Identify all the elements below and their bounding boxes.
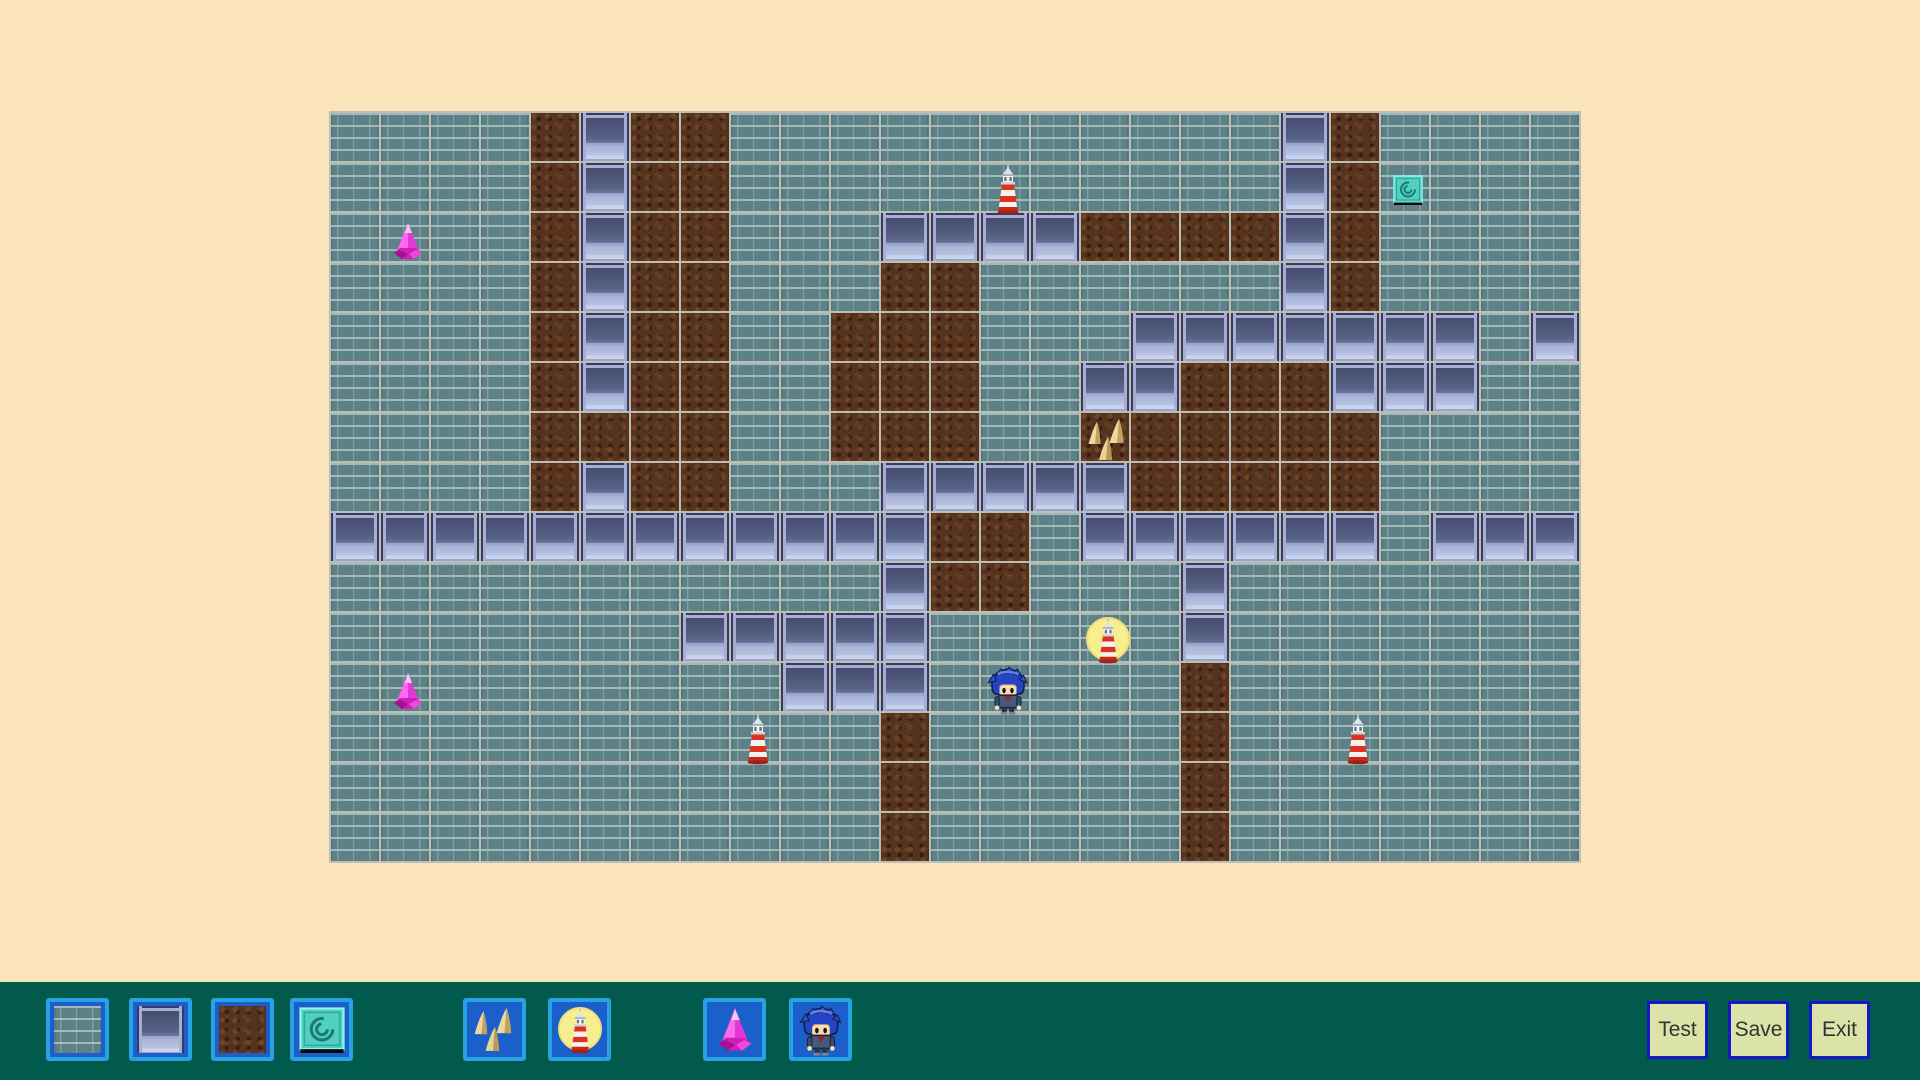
- map-cell-stone-brick[interactable]: [581, 813, 631, 863]
- map-cell-dirt[interactable]: [1331, 213, 1381, 263]
- map-cell-stone-brick[interactable]: [431, 113, 481, 163]
- map-cell-dirt[interactable]: [981, 513, 1031, 563]
- lit-lighthouse-button[interactable]: [548, 998, 611, 1061]
- player-character-button[interactable]: [789, 998, 852, 1061]
- map-cell-stone-brick[interactable]: [1381, 663, 1431, 713]
- map-cell-dirt[interactable]: [881, 413, 931, 463]
- map-cell-dirt[interactable]: [631, 463, 681, 513]
- map-cell-dirt[interactable]: [1331, 163, 1381, 213]
- map-cell-stone-brick[interactable]: [481, 113, 531, 163]
- map-cell-metal-panel[interactable]: [681, 513, 731, 563]
- map-cell-metal-panel[interactable]: [1031, 213, 1081, 263]
- map-cell-dirt[interactable]: [531, 263, 581, 313]
- map-cell-stone-brick[interactable]: [1431, 813, 1481, 863]
- map-cell-stone-brick[interactable]: [1031, 763, 1081, 813]
- map-cell-metal-panel[interactable]: [431, 513, 481, 563]
- map-cell-metal-panel[interactable]: [881, 613, 931, 663]
- map-cell-stone-brick[interactable]: [1031, 113, 1081, 163]
- map-cell-stone-brick[interactable]: [1181, 163, 1231, 213]
- map-cell-stone-brick[interactable]: [1381, 763, 1431, 813]
- map-cell-dirt[interactable]: [1331, 413, 1381, 463]
- map-cell-stone-brick[interactable]: [1231, 663, 1281, 713]
- map-cell-stone-brick[interactable]: [1331, 813, 1381, 863]
- map-cell-metal-panel[interactable]: [1481, 513, 1531, 563]
- map-cell-metal-panel[interactable]: [331, 513, 381, 563]
- map-cell-stone-brick[interactable]: [1281, 613, 1331, 663]
- map-cell-stone-brick[interactable]: [1281, 813, 1331, 863]
- map-cell-stone-brick[interactable]: [831, 463, 881, 513]
- map-cell-stone-brick[interactable]: [331, 163, 381, 213]
- map-cell-dirt[interactable]: [1281, 413, 1331, 463]
- map-cell-stone-brick[interactable]: [331, 263, 381, 313]
- map-cell-stone-brick[interactable]: [331, 563, 381, 613]
- map-cell-stone-brick[interactable]: [1531, 813, 1581, 863]
- map-cell-stone-brick[interactable]: [731, 663, 781, 713]
- map-cell-stone-brick[interactable]: [481, 263, 531, 313]
- map-cell-dirt[interactable]: [881, 763, 931, 813]
- map-cell-stone-brick[interactable]: [1081, 563, 1131, 613]
- map-cell-stone-brick[interactable]: [1081, 713, 1131, 763]
- map-cell-stone-brick[interactable]: [1381, 813, 1431, 863]
- map-cell-metal-panel[interactable]: [581, 213, 631, 263]
- map-cell-dirt[interactable]: [531, 113, 581, 163]
- map-cell-metal-panel[interactable]: [831, 513, 881, 563]
- map-cell-dirt[interactable]: [531, 363, 581, 413]
- map-cell-metal-panel[interactable]: [931, 463, 981, 513]
- map-cell-stone-brick[interactable]: [1281, 763, 1331, 813]
- map-cell-stone-brick[interactable]: [631, 563, 681, 613]
- map-cell-stone-brick[interactable]: [381, 113, 431, 163]
- map-cell-stone-brick[interactable]: [1381, 263, 1431, 313]
- map-cell-stone-brick[interactable]: [431, 563, 481, 613]
- map-cell-stone-brick[interactable]: [731, 363, 781, 413]
- map-cell-stone-brick[interactable]: [331, 813, 381, 863]
- map-cell-stone-brick[interactable]: [931, 113, 981, 163]
- map-cell-stone-brick[interactable]: [1331, 763, 1381, 813]
- map-cell-dirt[interactable]: [1331, 463, 1381, 513]
- map-cell-dirt[interactable]: [531, 213, 581, 263]
- map-cell-stone-brick[interactable]: [931, 813, 981, 863]
- map-cell-stone-brick[interactable]: [1081, 313, 1131, 363]
- map-cell-stone-brick[interactable]: [381, 363, 431, 413]
- map-cell-stone-brick[interactable]: [331, 363, 381, 413]
- map-cell-dirt[interactable]: [1281, 363, 1331, 413]
- map-cell-stone-brick[interactable]: [531, 763, 581, 813]
- map-cell-metal-panel[interactable]: [1331, 313, 1381, 363]
- map-cell-stone-brick[interactable]: [731, 763, 781, 813]
- map-cell-stone-brick[interactable]: [1231, 113, 1281, 163]
- map-cell-dirt[interactable]: [1081, 213, 1131, 263]
- map-cell-stone-brick[interactable]: [431, 313, 481, 363]
- map-cell-stone-brick[interactable]: [981, 363, 1031, 413]
- map-cell-dirt[interactable]: [1181, 713, 1231, 763]
- map-cell-stone-brick[interactable]: [1531, 613, 1581, 663]
- map-cell-dirt[interactable]: [531, 413, 581, 463]
- map-cell-stone-brick[interactable]: [731, 163, 781, 213]
- map-cell-stone-brick[interactable]: [781, 813, 831, 863]
- map-cell-stone-brick[interactable]: [1331, 663, 1381, 713]
- map-cell-stone-brick[interactable]: [981, 113, 1031, 163]
- map-cell-stone-brick[interactable]: [431, 463, 481, 513]
- map-cell-stone-brick[interactable]: [1531, 263, 1581, 313]
- spikes-sprite[interactable]: [1083, 415, 1133, 465]
- map-cell-dirt[interactable]: [681, 163, 731, 213]
- map-cell-stone-brick[interactable]: [931, 763, 981, 813]
- map-cell-metal-panel[interactable]: [1281, 163, 1331, 213]
- map-cell-dirt[interactable]: [531, 313, 581, 363]
- map-cell-stone-brick[interactable]: [831, 813, 881, 863]
- map-cell-metal-panel[interactable]: [1131, 363, 1181, 413]
- map-cell-stone-brick[interactable]: [1431, 163, 1481, 213]
- map-cell-stone-brick[interactable]: [1531, 363, 1581, 413]
- map-cell-stone-brick[interactable]: [331, 713, 381, 763]
- map-cell-stone-brick[interactable]: [931, 713, 981, 763]
- lighthouse-sprite[interactable]: [733, 715, 783, 765]
- map-cell-stone-brick[interactable]: [831, 263, 881, 313]
- gem-sprite[interactable]: [383, 215, 433, 265]
- map-cell-metal-panel[interactable]: [981, 463, 1031, 513]
- lighthouse-lit-sprite[interactable]: [1083, 615, 1133, 665]
- map-cell-stone-brick[interactable]: [1031, 313, 1081, 363]
- map-cell-metal-panel[interactable]: [1181, 313, 1231, 363]
- map-cell-metal-panel[interactable]: [781, 613, 831, 663]
- map-cell-stone-brick[interactable]: [781, 113, 831, 163]
- map-cell-metal-panel[interactable]: [1431, 513, 1481, 563]
- map-cell-stone-brick[interactable]: [781, 313, 831, 363]
- map-cell-metal-panel[interactable]: [581, 163, 631, 213]
- map-cell-stone-brick[interactable]: [1481, 113, 1531, 163]
- stone-brick-tile-button[interactable]: [46, 998, 109, 1061]
- map-cell-stone-brick[interactable]: [981, 713, 1031, 763]
- spiral-tile-button[interactable]: [290, 998, 353, 1061]
- map-cell-dirt[interactable]: [681, 363, 731, 413]
- map-cell-stone-brick[interactable]: [1031, 163, 1081, 213]
- map-cell-stone-brick[interactable]: [1131, 163, 1181, 213]
- map-cell-stone-brick[interactable]: [581, 713, 631, 763]
- map-cell-stone-brick[interactable]: [831, 713, 881, 763]
- map-cell-dirt[interactable]: [881, 713, 931, 763]
- map-cell-metal-panel[interactable]: [781, 663, 831, 713]
- map-cell-dirt[interactable]: [931, 513, 981, 563]
- map-cell-stone-brick[interactable]: [481, 213, 531, 263]
- map-cell-stone-brick[interactable]: [1031, 663, 1081, 713]
- map-cell-dirt[interactable]: [681, 463, 731, 513]
- map-cell-stone-brick[interactable]: [1381, 713, 1431, 763]
- map-cell-stone-brick[interactable]: [481, 563, 531, 613]
- map-cell-metal-panel[interactable]: [1281, 113, 1331, 163]
- map-cell-stone-brick[interactable]: [431, 263, 481, 313]
- map-cell-stone-brick[interactable]: [731, 463, 781, 513]
- map-cell-dirt[interactable]: [1181, 763, 1231, 813]
- map-cell-stone-brick[interactable]: [1081, 113, 1131, 163]
- dirt-tile-button[interactable]: [211, 998, 274, 1061]
- exit-button[interactable]: Exit: [1809, 1001, 1870, 1059]
- map-cell-stone-brick[interactable]: [1231, 263, 1281, 313]
- map-cell-stone-brick[interactable]: [331, 463, 381, 513]
- map-cell-dirt[interactable]: [631, 413, 681, 463]
- map-cell-stone-brick[interactable]: [1431, 563, 1481, 613]
- map-cell-stone-brick[interactable]: [481, 663, 531, 713]
- map-cell-stone-brick[interactable]: [1281, 713, 1331, 763]
- map-cell-stone-brick[interactable]: [731, 263, 781, 313]
- map-cell-dirt[interactable]: [931, 413, 981, 463]
- map-cell-stone-brick[interactable]: [1431, 763, 1481, 813]
- map-cell-stone-brick[interactable]: [1181, 263, 1231, 313]
- map-cell-dirt[interactable]: [1181, 813, 1231, 863]
- map-cell-dirt[interactable]: [531, 463, 581, 513]
- map-cell-stone-brick[interactable]: [1481, 363, 1531, 413]
- map-cell-stone-brick[interactable]: [1131, 263, 1181, 313]
- map-cell-stone-brick[interactable]: [581, 663, 631, 713]
- map-cell-metal-panel[interactable]: [531, 513, 581, 563]
- map-cell-stone-brick[interactable]: [481, 713, 531, 763]
- map-cell-metal-panel[interactable]: [681, 613, 731, 663]
- map-cell-stone-brick[interactable]: [381, 563, 431, 613]
- map-cell-stone-brick[interactable]: [1531, 463, 1581, 513]
- map-cell-metal-panel[interactable]: [1381, 363, 1431, 413]
- map-cell-dirt[interactable]: [881, 313, 931, 363]
- map-cell-stone-brick[interactable]: [681, 663, 731, 713]
- map-cell-stone-brick[interactable]: [981, 813, 1031, 863]
- gem-button[interactable]: [703, 998, 766, 1061]
- map-cell-metal-panel[interactable]: [781, 513, 831, 563]
- map-cell-metal-panel[interactable]: [581, 313, 631, 363]
- map-cell-dirt[interactable]: [581, 413, 631, 463]
- map-cell-stone-brick[interactable]: [1031, 563, 1081, 613]
- map-cell-stone-brick[interactable]: [431, 763, 481, 813]
- map-cell-metal-panel[interactable]: [981, 213, 1031, 263]
- map-cell-stone-brick[interactable]: [1381, 213, 1431, 263]
- map-cell-dirt[interactable]: [1131, 413, 1181, 463]
- map-cell-stone-brick[interactable]: [1481, 463, 1531, 513]
- map-cell-dirt[interactable]: [531, 163, 581, 213]
- map-cell-stone-brick[interactable]: [1131, 563, 1181, 613]
- map-cell-stone-brick[interactable]: [931, 163, 981, 213]
- map-cell-stone-brick[interactable]: [1481, 263, 1531, 313]
- map-cell-stone-brick[interactable]: [731, 413, 781, 463]
- map-cell-dirt[interactable]: [631, 113, 681, 163]
- map-cell-dirt[interactable]: [881, 363, 931, 413]
- map-cell-metal-panel[interactable]: [581, 363, 631, 413]
- map-cell-stone-brick[interactable]: [481, 363, 531, 413]
- map-cell-metal-panel[interactable]: [1281, 263, 1331, 313]
- map-cell-stone-brick[interactable]: [631, 763, 681, 813]
- map-cell-dirt[interactable]: [1131, 463, 1181, 513]
- map-cell-metal-panel[interactable]: [881, 463, 931, 513]
- map-cell-stone-brick[interactable]: [681, 763, 731, 813]
- map-cell-stone-brick[interactable]: [1181, 113, 1231, 163]
- map-cell-metal-panel[interactable]: [731, 613, 781, 663]
- map-cell-stone-brick[interactable]: [1531, 713, 1581, 763]
- map-cell-dirt[interactable]: [1181, 413, 1231, 463]
- level-map-grid[interactable]: [329, 111, 1581, 863]
- map-cell-dirt[interactable]: [681, 263, 731, 313]
- map-cell-metal-panel[interactable]: [1181, 563, 1231, 613]
- map-cell-stone-brick[interactable]: [1531, 413, 1581, 463]
- map-cell-stone-brick[interactable]: [1231, 613, 1281, 663]
- map-cell-stone-brick[interactable]: [1231, 713, 1281, 763]
- map-cell-stone-brick[interactable]: [831, 213, 881, 263]
- map-cell-stone-brick[interactable]: [731, 313, 781, 363]
- map-cell-stone-brick[interactable]: [781, 213, 831, 263]
- map-cell-metal-panel[interactable]: [1281, 213, 1331, 263]
- map-cell-metal-panel[interactable]: [1131, 513, 1181, 563]
- map-cell-stone-brick[interactable]: [481, 813, 531, 863]
- map-cell-metal-panel[interactable]: [581, 463, 631, 513]
- map-cell-stone-brick[interactable]: [431, 363, 481, 413]
- map-cell-stone-brick[interactable]: [781, 563, 831, 613]
- map-cell-dirt[interactable]: [1281, 463, 1331, 513]
- map-cell-stone-brick[interactable]: [781, 363, 831, 413]
- map-cell-stone-brick[interactable]: [1481, 613, 1531, 663]
- map-cell-stone-brick[interactable]: [331, 663, 381, 713]
- map-cell-metal-panel[interactable]: [931, 213, 981, 263]
- map-cell-dirt[interactable]: [1181, 213, 1231, 263]
- spiral-tile-sprite[interactable]: [1383, 165, 1433, 215]
- map-cell-stone-brick[interactable]: [1081, 263, 1131, 313]
- map-cell-stone-brick[interactable]: [431, 613, 481, 663]
- map-cell-stone-brick[interactable]: [1531, 563, 1581, 613]
- map-cell-stone-brick[interactable]: [681, 563, 731, 613]
- map-cell-stone-brick[interactable]: [1381, 513, 1431, 563]
- map-cell-dirt[interactable]: [681, 413, 731, 463]
- map-cell-stone-brick[interactable]: [1431, 263, 1481, 313]
- map-cell-stone-brick[interactable]: [1281, 663, 1331, 713]
- map-cell-dirt[interactable]: [631, 163, 681, 213]
- character-sprite[interactable]: [983, 665, 1033, 715]
- map-cell-metal-panel[interactable]: [1531, 513, 1581, 563]
- map-cell-stone-brick[interactable]: [1331, 613, 1381, 663]
- map-cell-stone-brick[interactable]: [1531, 663, 1581, 713]
- map-cell-stone-brick[interactable]: [331, 763, 381, 813]
- map-cell-stone-brick[interactable]: [1131, 663, 1181, 713]
- test-button[interactable]: Test: [1647, 1001, 1708, 1059]
- map-cell-stone-brick[interactable]: [1431, 613, 1481, 663]
- map-cell-stone-brick[interactable]: [1031, 363, 1081, 413]
- map-cell-stone-brick[interactable]: [381, 613, 431, 663]
- map-cell-metal-panel[interactable]: [1431, 313, 1481, 363]
- map-cell-stone-brick[interactable]: [931, 613, 981, 663]
- map-cell-stone-brick[interactable]: [1031, 813, 1081, 863]
- map-cell-metal-panel[interactable]: [1031, 463, 1081, 513]
- map-cell-stone-brick[interactable]: [381, 313, 431, 363]
- map-cell-stone-brick[interactable]: [1481, 213, 1531, 263]
- map-cell-stone-brick[interactable]: [881, 163, 931, 213]
- map-cell-stone-brick[interactable]: [481, 763, 531, 813]
- map-cell-stone-brick[interactable]: [631, 613, 681, 663]
- map-cell-stone-brick[interactable]: [1431, 113, 1481, 163]
- map-cell-stone-brick[interactable]: [1231, 163, 1281, 213]
- map-cell-stone-brick[interactable]: [1231, 563, 1281, 613]
- map-cell-stone-brick[interactable]: [981, 763, 1031, 813]
- map-cell-dirt[interactable]: [1131, 213, 1181, 263]
- map-cell-metal-panel[interactable]: [731, 513, 781, 563]
- map-cell-stone-brick[interactable]: [481, 163, 531, 213]
- map-cell-metal-panel[interactable]: [1231, 513, 1281, 563]
- map-cell-dirt[interactable]: [1231, 463, 1281, 513]
- map-cell-stone-brick[interactable]: [431, 213, 481, 263]
- map-cell-stone-brick[interactable]: [731, 563, 781, 613]
- map-cell-stone-brick[interactable]: [581, 563, 631, 613]
- map-cell-stone-brick[interactable]: [1531, 763, 1581, 813]
- map-cell-metal-panel[interactable]: [881, 563, 931, 613]
- map-cell-stone-brick[interactable]: [381, 463, 431, 513]
- map-cell-stone-brick[interactable]: [781, 463, 831, 513]
- map-cell-stone-brick[interactable]: [1131, 713, 1181, 763]
- map-cell-metal-panel[interactable]: [631, 513, 681, 563]
- map-cell-metal-panel[interactable]: [1331, 513, 1381, 563]
- map-cell-stone-brick[interactable]: [1031, 413, 1081, 463]
- lighthouse-sprite[interactable]: [983, 165, 1033, 215]
- map-cell-metal-panel[interactable]: [881, 213, 931, 263]
- map-cell-stone-brick[interactable]: [1481, 763, 1531, 813]
- map-cell-metal-panel[interactable]: [1131, 313, 1181, 363]
- map-cell-metal-panel[interactable]: [831, 663, 881, 713]
- map-cell-stone-brick[interactable]: [1481, 813, 1531, 863]
- map-cell-stone-brick[interactable]: [331, 213, 381, 263]
- map-cell-stone-brick[interactable]: [1531, 113, 1581, 163]
- map-cell-stone-brick[interactable]: [1081, 163, 1131, 213]
- map-cell-dirt[interactable]: [681, 313, 731, 363]
- map-cell-metal-panel[interactable]: [581, 263, 631, 313]
- map-cell-stone-brick[interactable]: [331, 413, 381, 463]
- map-cell-dirt[interactable]: [1181, 463, 1231, 513]
- map-cell-stone-brick[interactable]: [1131, 613, 1181, 663]
- map-cell-stone-brick[interactable]: [581, 613, 631, 663]
- map-cell-dirt[interactable]: [681, 213, 731, 263]
- map-cell-dirt[interactable]: [631, 363, 681, 413]
- map-cell-metal-panel[interactable]: [1281, 313, 1331, 363]
- map-cell-stone-brick[interactable]: [1481, 563, 1531, 613]
- map-cell-stone-brick[interactable]: [1381, 613, 1431, 663]
- map-cell-stone-brick[interactable]: [481, 463, 531, 513]
- map-cell-metal-panel[interactable]: [381, 513, 431, 563]
- map-cell-stone-brick[interactable]: [431, 813, 481, 863]
- map-cell-stone-brick[interactable]: [1431, 463, 1481, 513]
- map-cell-metal-panel[interactable]: [1281, 513, 1331, 563]
- map-cell-stone-brick[interactable]: [1381, 113, 1431, 163]
- map-cell-dirt[interactable]: [831, 313, 881, 363]
- map-cell-stone-brick[interactable]: [531, 663, 581, 713]
- spikes-button[interactable]: [463, 998, 526, 1061]
- map-cell-stone-brick[interactable]: [781, 413, 831, 463]
- map-cell-stone-brick[interactable]: [531, 713, 581, 763]
- map-cell-stone-brick[interactable]: [1481, 713, 1531, 763]
- map-cell-stone-brick[interactable]: [1431, 213, 1481, 263]
- map-cell-stone-brick[interactable]: [431, 713, 481, 763]
- map-cell-stone-brick[interactable]: [681, 813, 731, 863]
- map-cell-stone-brick[interactable]: [381, 163, 431, 213]
- map-cell-stone-brick[interactable]: [381, 763, 431, 813]
- map-cell-stone-brick[interactable]: [381, 713, 431, 763]
- map-cell-stone-brick[interactable]: [481, 613, 531, 663]
- map-cell-stone-brick[interactable]: [681, 713, 731, 763]
- map-cell-stone-brick[interactable]: [1331, 563, 1381, 613]
- map-cell-dirt[interactable]: [881, 813, 931, 863]
- gem-sprite[interactable]: [383, 665, 433, 715]
- map-cell-stone-brick[interactable]: [1231, 763, 1281, 813]
- map-cell-stone-brick[interactable]: [831, 113, 881, 163]
- map-cell-metal-panel[interactable]: [881, 513, 931, 563]
- map-cell-stone-brick[interactable]: [1031, 263, 1081, 313]
- map-cell-metal-panel[interactable]: [831, 613, 881, 663]
- map-cell-stone-brick[interactable]: [1081, 813, 1131, 863]
- map-cell-metal-panel[interactable]: [1181, 613, 1231, 663]
- map-cell-dirt[interactable]: [1231, 363, 1281, 413]
- map-cell-stone-brick[interactable]: [831, 563, 881, 613]
- map-cell-stone-brick[interactable]: [1431, 663, 1481, 713]
- map-cell-metal-panel[interactable]: [481, 513, 531, 563]
